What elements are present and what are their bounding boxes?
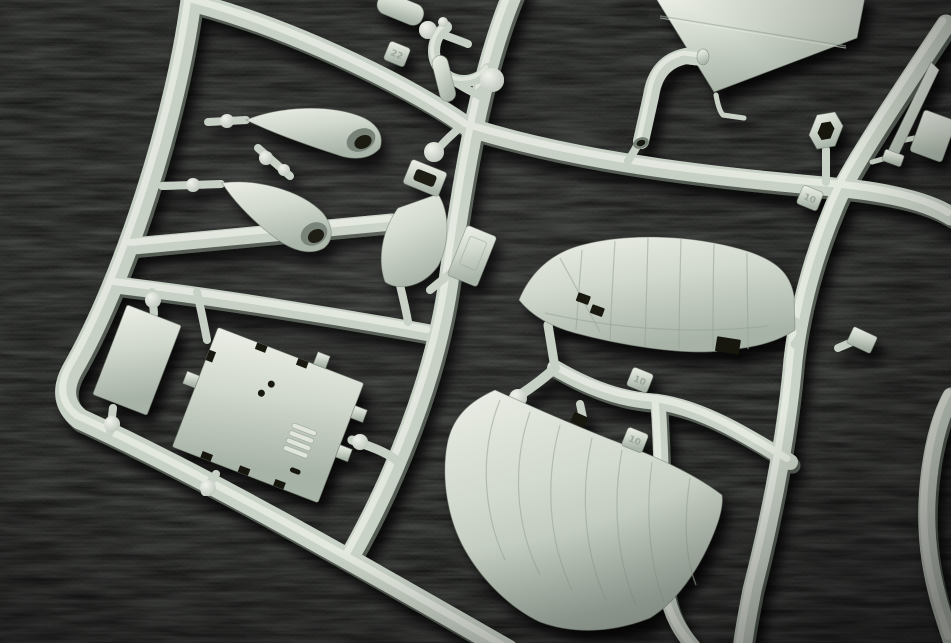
photo-vignette bbox=[0, 0, 951, 643]
photo-canvas: 22 10 10 10 bbox=[0, 0, 951, 643]
sprue-photo: 22 10 10 10 bbox=[0, 0, 951, 643]
